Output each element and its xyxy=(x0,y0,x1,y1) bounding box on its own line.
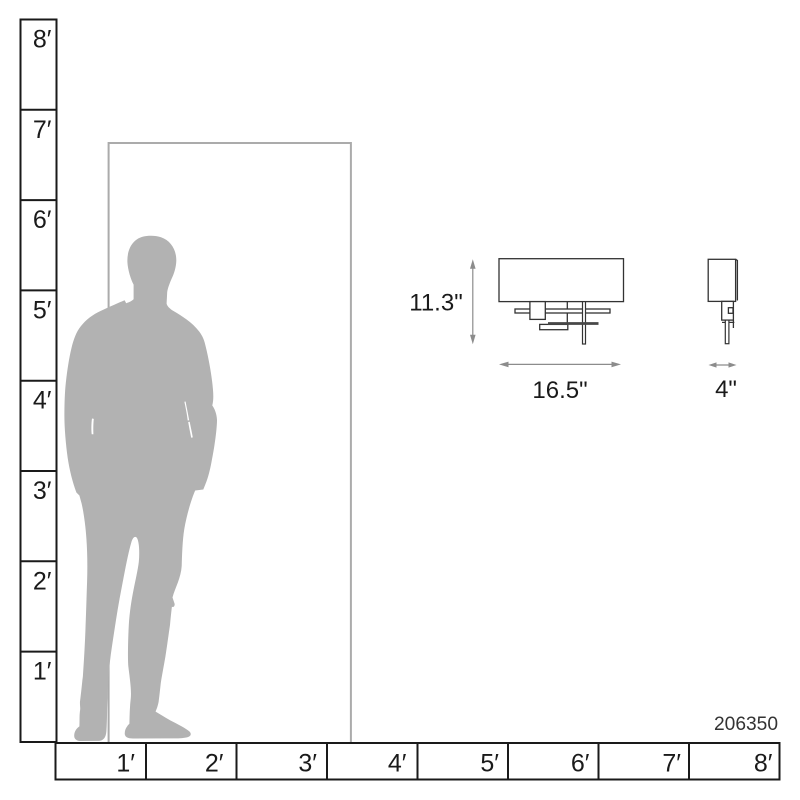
svg-text:3′: 3′ xyxy=(298,750,317,778)
svg-text:5′: 5′ xyxy=(33,296,52,324)
svg-text:5′: 5′ xyxy=(480,750,499,778)
svg-text:4": 4" xyxy=(715,376,737,403)
svg-text:2′: 2′ xyxy=(205,750,224,778)
svg-text:1′: 1′ xyxy=(33,658,52,686)
svg-text:4′: 4′ xyxy=(33,387,52,415)
svg-text:4′: 4′ xyxy=(388,750,407,778)
svg-text:3′: 3′ xyxy=(33,477,52,505)
svg-text:2′: 2′ xyxy=(33,567,52,595)
svg-text:1′: 1′ xyxy=(116,750,135,778)
svg-text:7′: 7′ xyxy=(33,116,52,144)
svg-text:6′: 6′ xyxy=(571,750,590,778)
svg-text:206350: 206350 xyxy=(714,714,778,735)
svg-text:7′: 7′ xyxy=(662,750,681,778)
svg-text:11.3": 11.3" xyxy=(409,290,462,317)
svg-text:8′: 8′ xyxy=(754,750,773,778)
svg-text:6′: 6′ xyxy=(33,206,52,234)
svg-text:8′: 8′ xyxy=(33,26,52,54)
svg-text:16.5": 16.5" xyxy=(532,377,587,404)
